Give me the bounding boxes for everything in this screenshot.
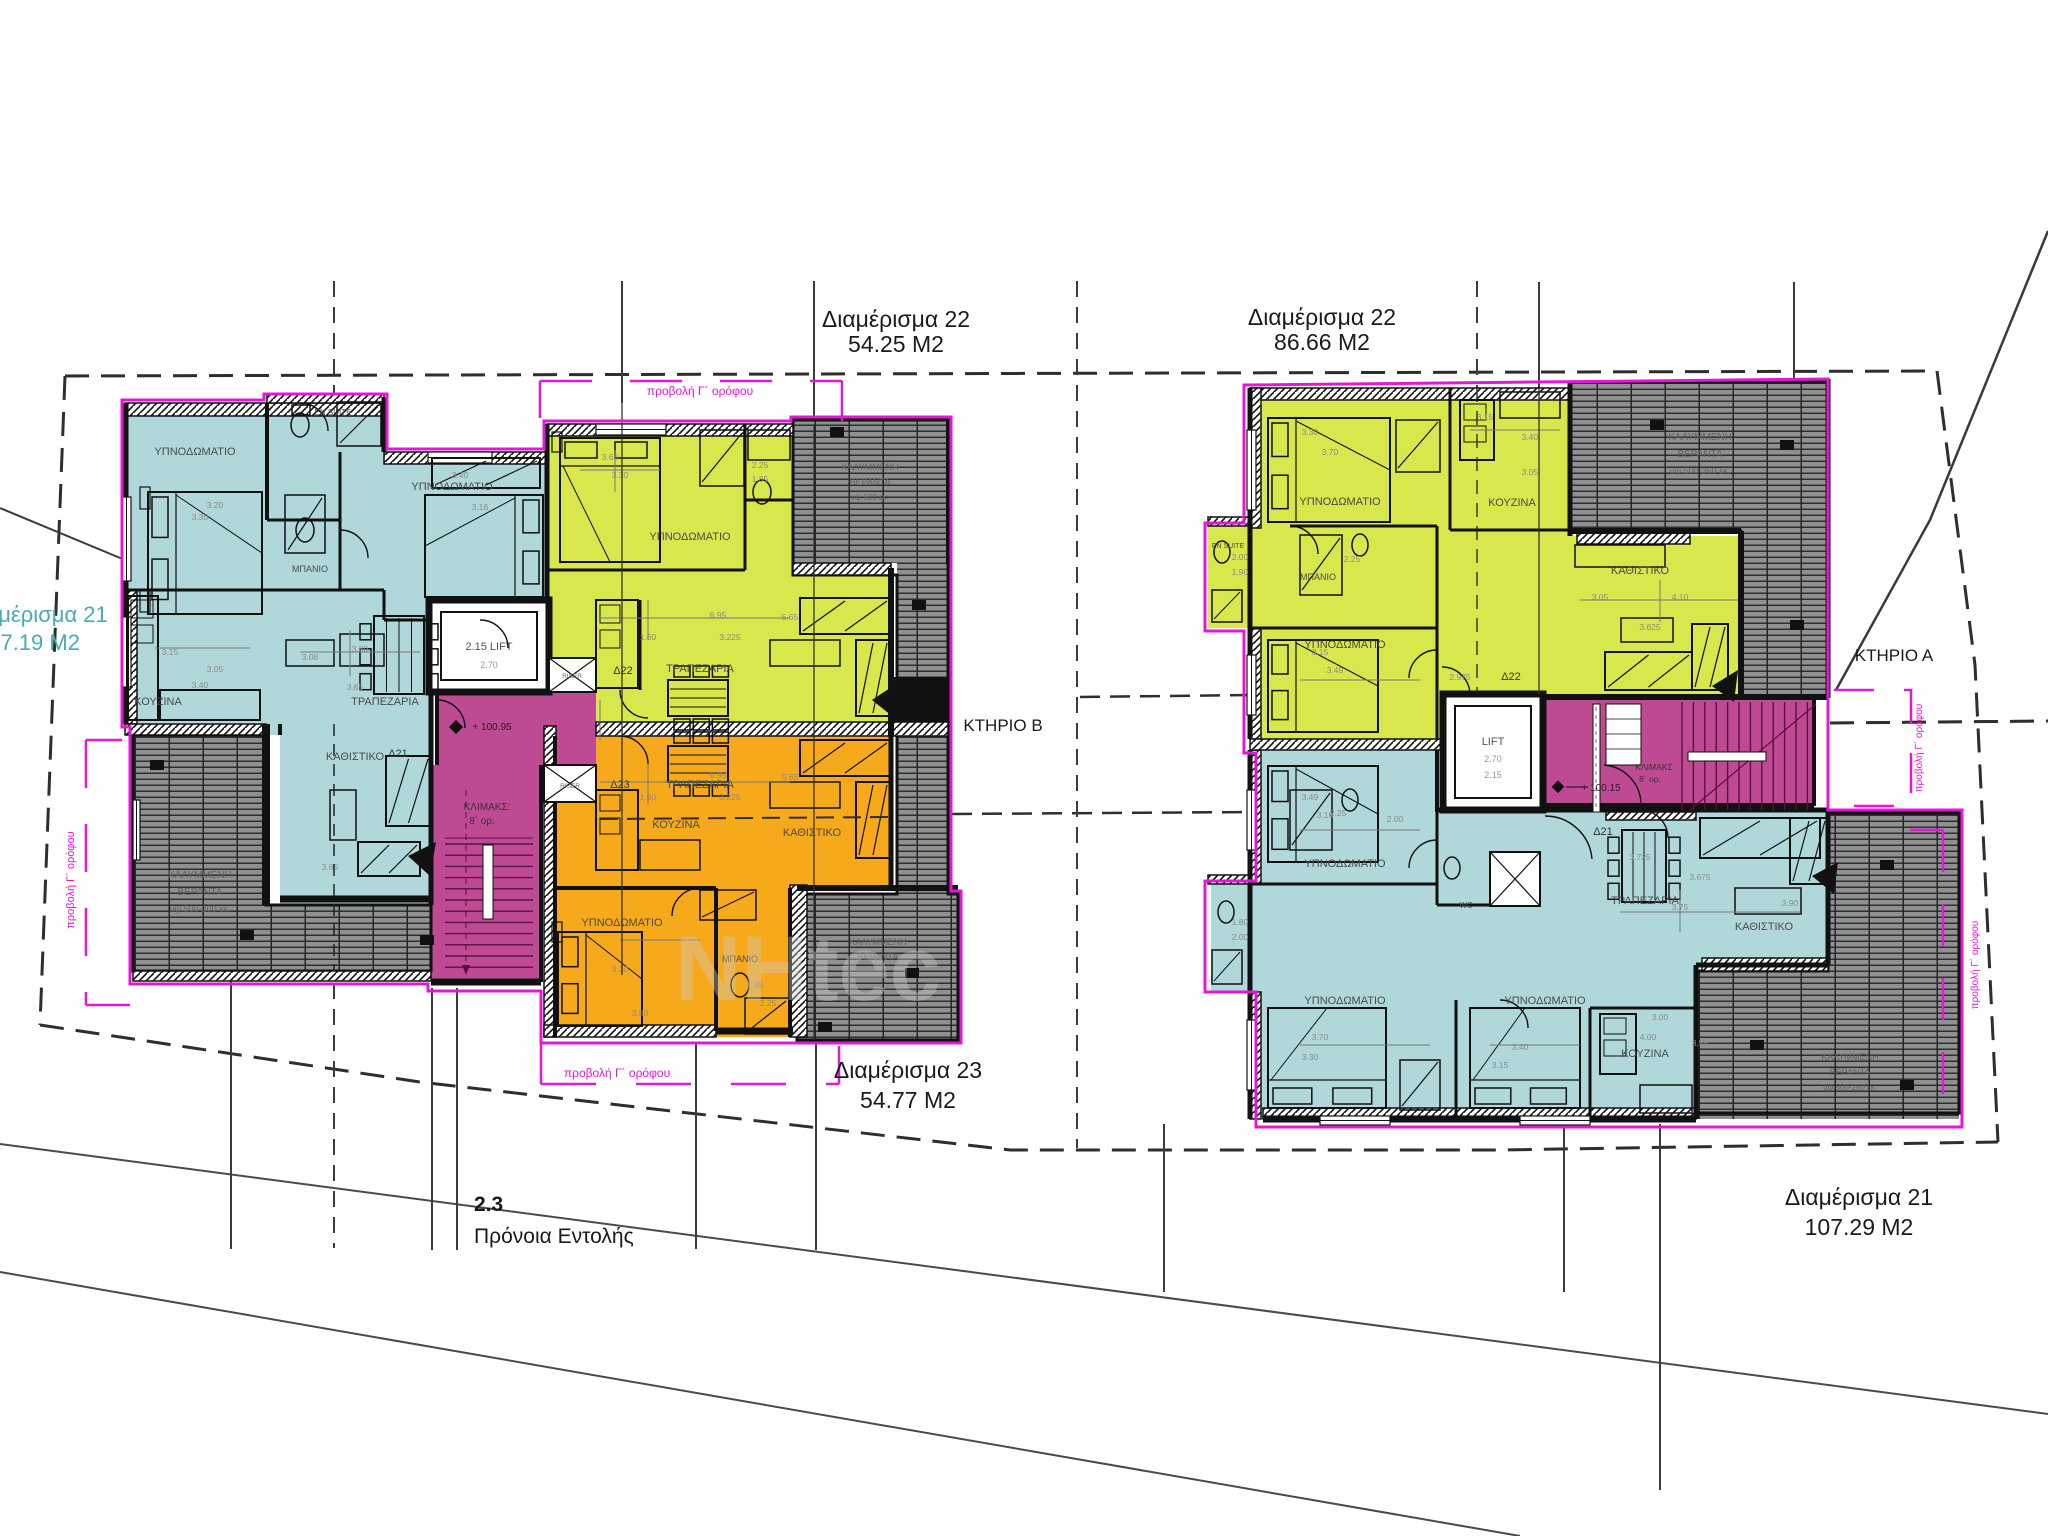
svg-text:2.25: 2.25	[752, 460, 769, 470]
svg-text:Διαμέρισμα 22: Διαμέρισμα 22	[1248, 304, 1396, 330]
svg-text:ΚΑΛΥΜΜΕΝΗ: ΚΑΛΥΜΜΕΝΗ	[841, 462, 898, 472]
svg-text:ΚΑΘΙΣΤΙΚΟ: ΚΑΘΙΣΤΙΚΟ	[1611, 565, 1670, 577]
svg-text:1.80: 1.80	[1232, 917, 1249, 927]
svg-text:1.85: 1.85	[752, 474, 769, 484]
svg-text:3.49: 3.49	[1302, 792, 1319, 802]
svg-text:προβολή Γ´ ορόφου: προβολή Γ´ ορόφου	[1913, 704, 1925, 793]
svg-text:2.15: 2.15	[1484, 770, 1502, 780]
svg-text:3.30: 3.30	[612, 470, 629, 480]
svg-text:3.15: 3.15	[1477, 412, 1494, 422]
svg-text:8´ ορ.: 8´ ορ.	[469, 815, 495, 827]
svg-text:προβολή Γ´ ορόφου: προβολή Γ´ ορόφου	[65, 831, 77, 928]
svg-text:2.00: 2.00	[1387, 814, 1404, 824]
svg-text:RISER: RISER	[560, 783, 580, 790]
svg-text:προβολή Γ´ ορόφου: προβολή Γ´ ορόφου	[647, 384, 753, 398]
svg-text:ΚΟΥΖΙΝΑ: ΚΟΥΖΙΝΑ	[652, 819, 700, 831]
svg-text:3.625: 3.625	[1639, 622, 1661, 632]
svg-text:3.20: 3.20	[612, 964, 629, 974]
svg-text:3.16: 3.16	[472, 502, 489, 512]
svg-text:3.40: 3.40	[452, 470, 469, 480]
svg-text:ΚΤΗΡΙΟ Α: ΚΤΗΡΙΟ Α	[1855, 646, 1934, 665]
svg-text:ΥΠΝΟΔΩΜΑΤΙΟ: ΥΠΝΟΔΩΜΑΤΙΟ	[1504, 995, 1586, 1007]
svg-text:1.90: 1.90	[1232, 567, 1249, 577]
svg-text:ΥΠΝΟΔΩΜΑΤΙΟ: ΥΠΝΟΔΩΜΑΤΙΟ	[649, 531, 731, 543]
svg-text:Διαμέρισμα 21: Διαμέρισμα 21	[0, 602, 108, 627]
svg-text:ΥΠΝΟΔΩΜΑΤΙΟ: ΥΠΝΟΔΩΜΑΤΙΟ	[1299, 496, 1381, 508]
svg-text:Διαμέρισμα 22: Διαμέρισμα 22	[822, 306, 970, 332]
svg-text:2.00: 2.00	[1232, 552, 1249, 562]
svg-text:3.05: 3.05	[207, 664, 224, 674]
svg-text:3.725: 3.725	[1629, 852, 1651, 862]
svg-text:Δ21: Δ21	[388, 748, 408, 760]
svg-text:προβολή Γ´ ορόφου: προβολή Γ´ ορόφου	[1969, 921, 1981, 1010]
svg-text:ΤΡΑΠΕΖΑΡΙΑ: ΤΡΑΠΕΖΑΡΙΑ	[666, 663, 734, 675]
svg-text:3.08: 3.08	[302, 652, 319, 662]
svg-text:86.66 Μ2: 86.66 Μ2	[1274, 329, 1370, 355]
svg-text:107.19 Μ2: 107.19 Μ2	[0, 630, 80, 655]
svg-text:Διαμέρισμα 21: Διαμέρισμα 21	[1785, 1184, 1933, 1210]
svg-text:ΥΠΝΟΔΩΜΑΤΙΟ: ΥΠΝΟΔΩΜΑΤΙΟ	[1304, 858, 1386, 870]
svg-text:3.15: 3.15	[1492, 1060, 1509, 1070]
svg-text:+ 100.95: + 100.95	[472, 722, 512, 733]
svg-text:3.30: 3.30	[1302, 427, 1319, 437]
svg-text:ΥΠΝΟΔΩΜΑΤΙΟ: ΥΠΝΟΔΩΜΑΤΙΟ	[411, 481, 493, 493]
svg-text:3.225: 3.225	[719, 792, 741, 802]
svg-text:ΚΟΥΖΙΝΑ: ΚΟΥΖΙΝΑ	[1621, 1048, 1669, 1060]
svg-text:Δ22: Δ22	[613, 665, 633, 677]
svg-text:ΚΛΙΜΑΚΣ:: ΚΛΙΜΑΚΣ:	[464, 802, 511, 813]
svg-text:Δ21: Δ21	[1593, 826, 1613, 838]
svg-text:3.20: 3.20	[207, 500, 224, 510]
svg-text:8´ ορ.: 8´ ορ.	[1639, 774, 1661, 784]
svg-text:2.25: 2.25	[1330, 808, 1347, 818]
svg-text:3.40: 3.40	[1512, 1042, 1529, 1052]
svg-text:ΤΡΑΠΕΖΑΡΙΑ: ΤΡΑΠΕΖΑΡΙΑ	[666, 779, 734, 791]
svg-text:WC: WC	[1459, 901, 1473, 910]
svg-text:3.65: 3.65	[347, 682, 364, 692]
svg-text:NHtec: NHtec	[675, 918, 941, 1020]
svg-text:ΒΕΡΑΝΤΑ: ΒΕΡΑΝΤΑ	[1677, 449, 1723, 460]
svg-text:2.3: 2.3	[474, 1193, 503, 1216]
svg-text:3.70: 3.70	[1312, 1032, 1329, 1042]
svg-text:προβολή Γ´ ορόφου: προβολή Γ´ ορόφου	[564, 1066, 670, 1080]
svg-text:4.00: 4.00	[1640, 1032, 1657, 1042]
svg-text:ΥΠΝΟΔΩΜΑΤΙΟ: ΥΠΝΟΔΩΜΑΤΙΟ	[1304, 995, 1386, 1007]
svg-text:3.05: 3.05	[1522, 467, 1539, 477]
svg-text:2.70: 2.70	[1484, 754, 1502, 764]
svg-text:3.40: 3.40	[192, 680, 209, 690]
svg-text:ΚΑΘΙΣΤΙΚΟ: ΚΑΘΙΣΤΙΚΟ	[1735, 921, 1794, 933]
svg-text:2.70: 2.70	[480, 660, 498, 670]
svg-text:54.25 Μ2: 54.25 Μ2	[848, 331, 944, 357]
svg-text:ΜΠΑΝΙΟ: ΜΠΑΝΙΟ	[1300, 572, 1336, 582]
svg-text:ΚΟΥΖΙΝΑ: ΚΟΥΖΙΝΑ	[134, 696, 182, 708]
svg-text:ΜΠΑΝΙΟ: ΜΠΑΝΙΟ	[292, 564, 328, 574]
svg-text:ΚΑΘΙΣΤΙΚΟ: ΚΑΘΙΣΤΙΚΟ	[783, 827, 842, 839]
svg-text:107.29 Μ2: 107.29 Μ2	[1805, 1214, 1914, 1240]
svg-text:3.65: 3.65	[322, 862, 339, 872]
svg-text:υψ.500 εκ.: υψ.500 εκ.	[851, 493, 889, 502]
svg-text:RISER: RISER	[562, 673, 582, 680]
svg-text:3.60: 3.60	[602, 452, 619, 462]
svg-text:3.55: 3.55	[1692, 1038, 1709, 1048]
svg-text:5.65: 5.65	[782, 772, 799, 782]
svg-text:ΚΑΛΥΜΜΕΝΗ: ΚΑΛΥΜΜΕΝΗ	[1668, 432, 1732, 443]
svg-text:ΚΟΥΖΙΝΑ: ΚΟΥΖΙΝΑ	[1488, 497, 1536, 509]
svg-text:ΚΑΛΥΜΜΕΝΗ: ΚΑΛΥΜΜΕΝΗ	[1821, 1052, 1878, 1062]
svg-text:5.65: 5.65	[782, 612, 799, 622]
svg-text:ΚΑΛΥΜΜΕΝΗ: ΚΑΛΥΜΜΕΝΗ	[168, 870, 232, 881]
svg-text:3.30: 3.30	[1302, 1052, 1319, 1062]
svg-text:EN SUITE: EN SUITE	[1212, 543, 1245, 550]
svg-text:6.95: 6.95	[710, 770, 727, 780]
svg-text:2.00: 2.00	[1232, 932, 1249, 942]
svg-text:2.15 LIFT: 2.15 LIFT	[465, 641, 512, 653]
svg-text:Δ22: Δ22	[1501, 671, 1521, 683]
svg-text:LIFT: LIFT	[1482, 736, 1505, 748]
svg-text:3.40: 3.40	[1522, 432, 1539, 442]
svg-text:ΒΕΡΑΝΤΑ: ΒΕΡΑΝΤΑ	[850, 477, 891, 487]
svg-text:ΤΡΑΠΕΖΑΡΙΑ: ΤΡΑΠΕΖΑΡΙΑ	[351, 696, 419, 708]
svg-text:υψ.500-260 εκ.: υψ.500-260 εκ.	[1670, 466, 1730, 476]
svg-text:2.975: 2.975	[1449, 672, 1471, 682]
svg-text:3.30: 3.30	[192, 512, 209, 522]
svg-text:3.90: 3.90	[1782, 898, 1799, 908]
svg-text:Δ23: Δ23	[610, 779, 630, 791]
svg-text:3.00: 3.00	[1652, 1012, 1669, 1022]
svg-text:2.25: 2.25	[1344, 554, 1361, 564]
svg-text:ΚΤΗΡΙΟ Β: ΚΤΗΡΙΟ Β	[963, 716, 1042, 735]
svg-text:3.70: 3.70	[1322, 447, 1339, 457]
svg-text:54.77 Μ2: 54.77 Μ2	[860, 1087, 956, 1113]
svg-text:υψ.500-260 εκ.: υψ.500-260 εκ.	[1823, 1083, 1877, 1092]
svg-text:3.80: 3.80	[632, 1008, 649, 1018]
svg-text:EN SUITE: EN SUITE	[315, 408, 352, 417]
svg-text:Διαμέρισμα 23: Διαμέρισμα 23	[834, 1057, 982, 1083]
svg-text:3.49: 3.49	[1327, 665, 1344, 675]
svg-text:ΤΡΑΠΕΖΑΡΙΑ: ΤΡΑΠΕΖΑΡΙΑ	[1611, 895, 1679, 907]
svg-text:ΒΕΡΑΝΤΑ: ΒΕΡΑΝΤΑ	[1830, 1067, 1871, 1077]
svg-text:+ 100.15: + 100.15	[1581, 783, 1621, 794]
svg-text:υψ.500-200 εκ.: υψ.500-200 εκ.	[170, 904, 230, 914]
svg-text:ΥΠΝΟΔΩΜΑΤΙΟ: ΥΠΝΟΔΩΜΑΤΙΟ	[154, 446, 236, 458]
svg-text:3.675: 3.675	[1689, 872, 1711, 882]
svg-text:3.225: 3.225	[719, 632, 741, 642]
svg-text:3.15: 3.15	[1312, 647, 1329, 657]
svg-text:Πρόνοια Εντολής: Πρόνοια Εντολής	[474, 1225, 634, 1248]
svg-text:ΒΕΡΑΝΤΑ: ΒΕΡΑΝΤΑ	[177, 887, 223, 898]
svg-text:ΚΛΙΜΑΚΣ: ΚΛΙΜΑΚΣ	[1635, 762, 1672, 772]
